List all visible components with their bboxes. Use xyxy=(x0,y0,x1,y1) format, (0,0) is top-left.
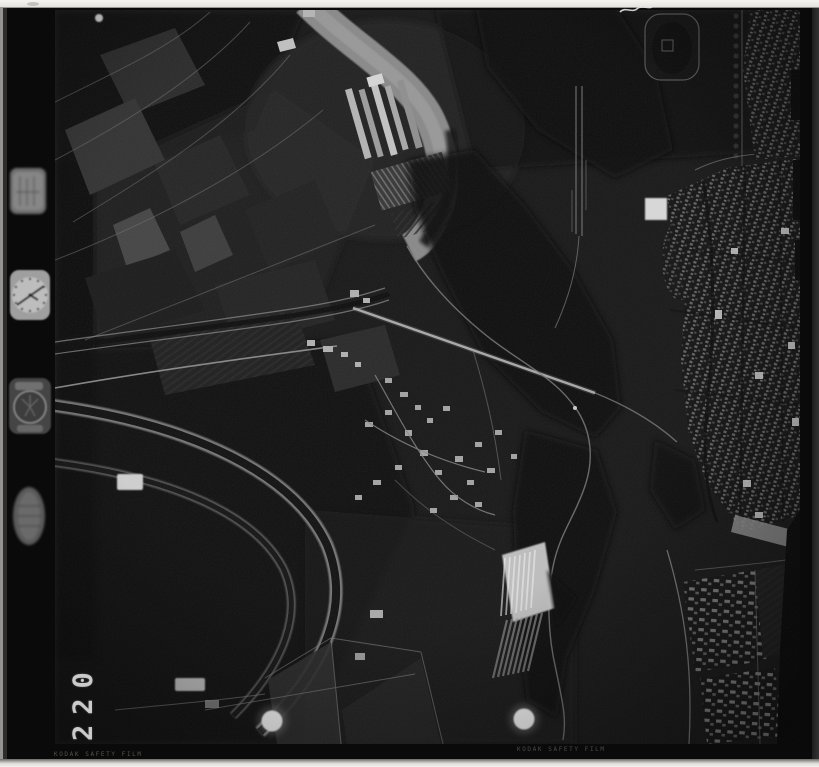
altimeter-dial-icon xyxy=(9,378,51,434)
grease-pencil-mark xyxy=(618,3,654,17)
film-edge-print-right: KODAK SAFETY FILM xyxy=(517,746,606,753)
aerial-photo-image xyxy=(55,10,800,744)
data-panel-icon xyxy=(10,168,46,214)
paper-margin-top xyxy=(0,0,819,8)
paper-margin-right xyxy=(812,8,819,759)
film-scan-page: 220 KODAK SAFETY FILM KODAK SAFETY FILM xyxy=(0,0,819,767)
clock-dial-icon xyxy=(10,270,50,320)
dust-mark xyxy=(27,2,39,6)
film-edge-print-left: KODAK SAFETY FILM xyxy=(54,751,143,758)
level-vial-icon xyxy=(13,487,45,545)
paper-margin-bottom xyxy=(0,759,819,767)
film-margin-instruments xyxy=(0,8,55,759)
film-frame-number: 220 xyxy=(68,662,99,741)
aerial-photograph xyxy=(55,10,800,744)
